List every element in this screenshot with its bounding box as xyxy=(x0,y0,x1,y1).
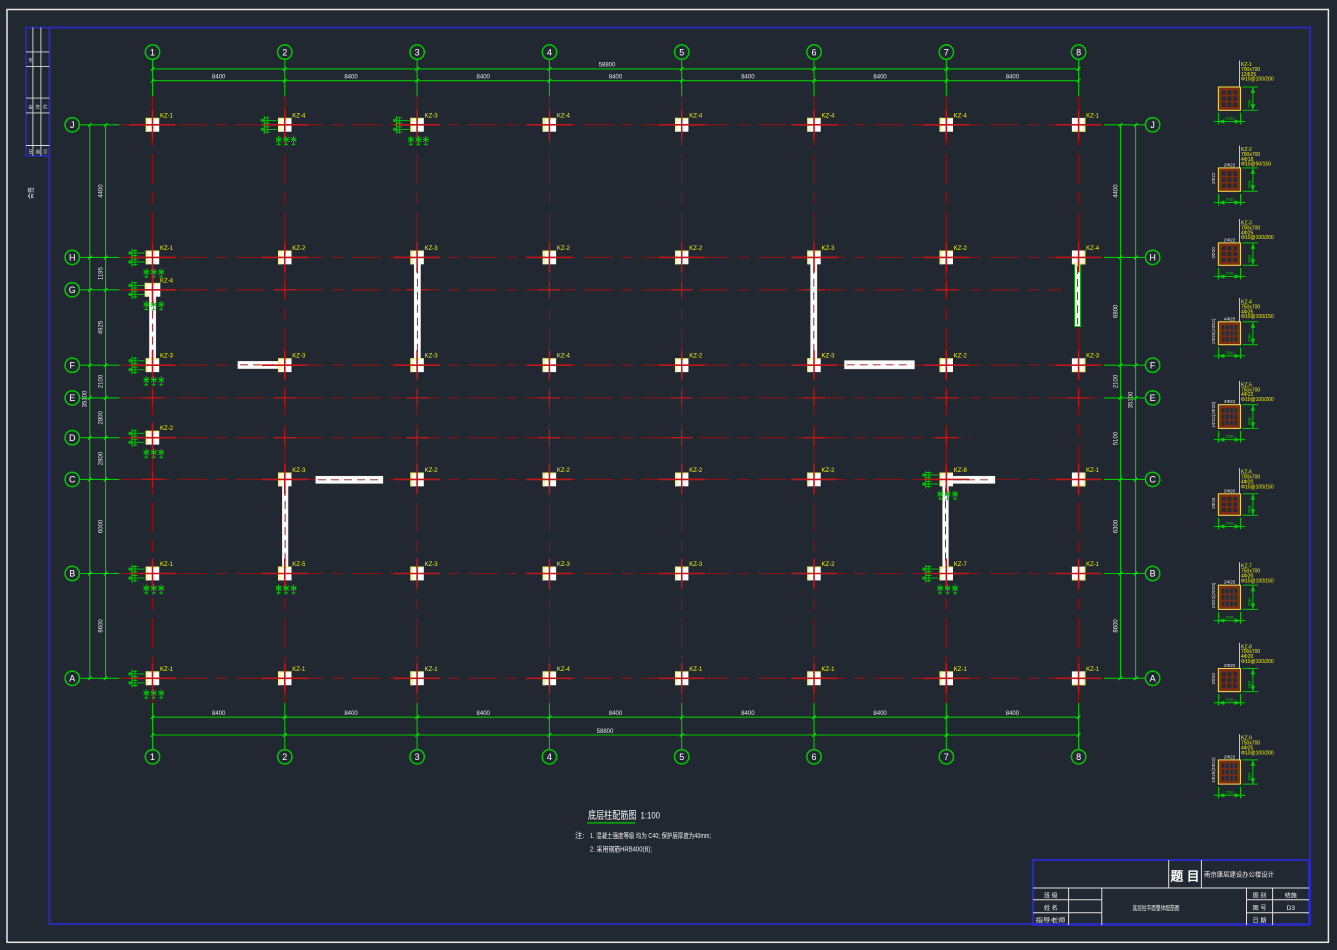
svg-text:700: 700 xyxy=(1225,271,1233,277)
svg-text:700: 700 xyxy=(1225,697,1233,703)
svg-text:B: B xyxy=(69,569,75,579)
svg-text:KZ-5: KZ-5 xyxy=(292,562,306,568)
svg-text:注:: 注: xyxy=(575,830,585,840)
svg-text:KZ-3: KZ-3 xyxy=(689,562,703,568)
svg-text:700: 700 xyxy=(1247,99,1253,107)
svg-text:KZ-1: KZ-1 xyxy=(954,667,968,673)
svg-text:8400: 8400 xyxy=(212,711,226,717)
svg-text:700: 700 xyxy=(1225,350,1233,356)
svg-text:700: 700 xyxy=(1225,116,1233,122)
svg-text:KZ-4: KZ-4 xyxy=(557,667,571,673)
svg-text:姓 名: 姓 名 xyxy=(1044,904,1058,912)
svg-text:2. 采用钢筋HRB400(B);: 2. 采用钢筋HRB400(B); xyxy=(590,845,652,854)
svg-text:8: 8 xyxy=(1076,752,1081,762)
svg-text:A: A xyxy=(1150,674,1156,684)
svg-text:2Φ25: 2Φ25 xyxy=(1224,580,1236,585)
svg-text:700: 700 xyxy=(1225,615,1233,621)
svg-text:F: F xyxy=(1150,360,1156,370)
svg-text:4: 4 xyxy=(547,752,552,762)
svg-text:栏: 栏 xyxy=(43,104,48,111)
svg-text:6000: 6000 xyxy=(99,519,105,533)
svg-text:日 期: 日 期 xyxy=(1253,916,1267,924)
svg-text:KZ-1: KZ-1 xyxy=(425,667,439,673)
svg-text:4Φ22: 4Φ22 xyxy=(1224,399,1236,404)
svg-text:KZ-4: KZ-4 xyxy=(954,113,968,119)
svg-text:8400: 8400 xyxy=(1006,75,1020,81)
svg-text:1195: 1195 xyxy=(99,266,105,280)
svg-text:签: 签 xyxy=(36,104,41,110)
svg-text:8400: 8400 xyxy=(873,711,887,717)
svg-text:1: 1 xyxy=(150,47,155,57)
svg-text:J: J xyxy=(70,120,75,130)
svg-text:KZ-3: KZ-3 xyxy=(425,562,439,568)
svg-text:1Φ25(1Φ22): 1Φ25(1Φ22) xyxy=(1211,318,1216,344)
svg-text:700: 700 xyxy=(1225,197,1233,203)
svg-text:2Φ22: 2Φ22 xyxy=(1211,172,1216,184)
svg-text:KZ-1: KZ-1 xyxy=(160,562,174,568)
svg-text:J: J xyxy=(1150,120,1155,130)
svg-text:2: 2 xyxy=(282,752,287,762)
svg-text:KZ-4: KZ-4 xyxy=(557,354,571,360)
svg-text:D3: D3 xyxy=(1287,905,1296,912)
svg-text:Φ10@100/150: Φ10@100/150 xyxy=(1241,578,1274,584)
svg-text:4: 4 xyxy=(547,47,552,57)
svg-text:7: 7 xyxy=(944,47,949,57)
svg-text:8600: 8600 xyxy=(99,619,105,633)
svg-text:2100: 2100 xyxy=(1113,374,1119,388)
svg-text:1Φ25(2Φ22): 1Φ25(2Φ22) xyxy=(1211,757,1216,783)
svg-text:5: 5 xyxy=(679,47,684,57)
svg-text:KZ-3: KZ-3 xyxy=(822,246,836,252)
svg-text:7: 7 xyxy=(944,752,949,762)
svg-text:结施: 结施 xyxy=(1285,891,1297,899)
svg-text:2Φ25: 2Φ25 xyxy=(1211,497,1216,509)
svg-text:6: 6 xyxy=(811,47,816,57)
svg-text:2800: 2800 xyxy=(99,410,105,424)
svg-text:KZ-3: KZ-3 xyxy=(160,354,174,360)
svg-text:8400: 8400 xyxy=(477,711,491,717)
svg-text:KZ-2: KZ-2 xyxy=(954,354,968,360)
svg-text:南京康居建设办公楼设计: 南京康居建设办公楼设计 xyxy=(1204,870,1275,879)
svg-text:KZ-4: KZ-4 xyxy=(689,113,703,119)
svg-text:F: F xyxy=(69,360,75,370)
svg-text:8400: 8400 xyxy=(1006,711,1020,717)
svg-text:2: 2 xyxy=(282,47,287,57)
svg-text:KZ-2: KZ-2 xyxy=(557,468,571,474)
svg-text:KZ-3: KZ-3 xyxy=(292,354,306,360)
svg-text:Φ10@100/200: Φ10@100/200 xyxy=(1241,659,1274,665)
svg-text:G: G xyxy=(69,285,76,295)
svg-text:2Φ20: 2Φ20 xyxy=(1211,673,1216,685)
svg-text:2Φ22: 2Φ22 xyxy=(1224,754,1236,759)
svg-text:E: E xyxy=(1150,393,1156,403)
svg-text:B: B xyxy=(1150,569,1156,579)
svg-text:C: C xyxy=(1149,475,1156,485)
svg-text:35100: 35100 xyxy=(83,390,89,407)
svg-text:8400: 8400 xyxy=(741,711,755,717)
svg-text:700: 700 xyxy=(1247,417,1253,425)
svg-text:A: A xyxy=(69,674,75,684)
svg-text:KZ-3: KZ-3 xyxy=(425,354,439,360)
svg-text:KZ-3: KZ-3 xyxy=(425,113,439,119)
svg-text:KZ-1: KZ-1 xyxy=(822,667,836,673)
svg-text:35100: 35100 xyxy=(1128,391,1134,408)
svg-text:KZ-1: KZ-1 xyxy=(689,667,703,673)
svg-text:58800: 58800 xyxy=(599,63,616,69)
svg-text:2100: 2100 xyxy=(99,374,105,388)
svg-text:KZ-4: KZ-4 xyxy=(557,113,571,119)
svg-text:底层柱配筋图: 底层柱配筋图 xyxy=(588,809,637,822)
svg-text:Φ10@100/200: Φ10@100/200 xyxy=(1241,235,1274,241)
svg-text:KZ-1: KZ-1 xyxy=(1086,562,1100,568)
svg-text:KZ-3: KZ-3 xyxy=(822,354,836,360)
svg-text:4400: 4400 xyxy=(1113,184,1119,198)
svg-text:Φ10@100/200: Φ10@100/200 xyxy=(1241,77,1274,83)
svg-text:2Φ20: 2Φ20 xyxy=(1211,247,1216,259)
svg-text:1:100: 1:100 xyxy=(641,811,661,821)
svg-text:5100: 5100 xyxy=(1113,431,1119,445)
svg-text:会签: 会签 xyxy=(27,187,35,199)
svg-text:Φ10@100/200: Φ10@100/200 xyxy=(1241,750,1274,756)
svg-text:3: 3 xyxy=(415,752,420,762)
svg-text:专: 专 xyxy=(28,57,33,64)
svg-text:8400: 8400 xyxy=(344,711,358,717)
svg-text:8400: 8400 xyxy=(873,75,887,81)
svg-text:2Φ22: 2Φ22 xyxy=(1224,237,1236,242)
svg-text:KZ-1: KZ-1 xyxy=(1086,667,1100,673)
svg-text:C: C xyxy=(69,475,76,485)
svg-text:6: 6 xyxy=(811,752,816,762)
svg-text:58800: 58800 xyxy=(597,729,614,735)
svg-text:8600: 8600 xyxy=(1113,619,1119,633)
svg-text:700: 700 xyxy=(1225,434,1233,440)
svg-text:KZ-3: KZ-3 xyxy=(557,562,571,568)
svg-text:KZ-1: KZ-1 xyxy=(160,246,174,252)
svg-text:图 别: 图 别 xyxy=(1253,891,1267,899)
svg-text:2Φ20: 2Φ20 xyxy=(1224,663,1236,668)
svg-text:Φ10@100/150: Φ10@100/150 xyxy=(1241,314,1274,320)
svg-text:5: 5 xyxy=(679,752,684,762)
svg-text:KZ-1: KZ-1 xyxy=(1086,113,1100,119)
svg-text:Φ10@100/150: Φ10@100/150 xyxy=(1241,484,1274,490)
svg-text:KZ-2: KZ-2 xyxy=(689,246,703,252)
svg-text:1: 1 xyxy=(150,752,155,762)
svg-text:1Φ22(2Φ20): 1Φ22(2Φ20) xyxy=(1211,401,1216,427)
svg-text:H: H xyxy=(1149,253,1156,263)
svg-text:KZ-2: KZ-2 xyxy=(557,246,571,252)
svg-text:KZ-1: KZ-1 xyxy=(160,667,174,673)
svg-text:底层柱平面整体配筋图: 底层柱平面整体配筋图 xyxy=(1133,903,1180,912)
svg-text:KZ-3: KZ-3 xyxy=(292,468,306,474)
svg-text:KZ-4: KZ-4 xyxy=(160,278,174,284)
svg-text:1Φ22(2Φ20): 1Φ22(2Φ20) xyxy=(1211,582,1216,608)
svg-text:KZ-2: KZ-2 xyxy=(822,562,836,568)
svg-text:6800: 6800 xyxy=(1113,304,1119,318)
svg-text:700: 700 xyxy=(1247,505,1253,513)
svg-text:KZ-2: KZ-2 xyxy=(292,246,306,252)
svg-text:KZ-7: KZ-7 xyxy=(954,562,968,568)
svg-text:KZ-3: KZ-3 xyxy=(1086,354,1100,360)
svg-text:H: H xyxy=(69,253,76,263)
svg-text:KZ-4: KZ-4 xyxy=(822,113,836,119)
svg-text:KZ-4: KZ-4 xyxy=(292,113,306,119)
svg-text:8: 8 xyxy=(1076,47,1081,57)
svg-text:指导老师: 指导老师 xyxy=(1036,916,1066,924)
svg-text:KZ-3: KZ-3 xyxy=(425,246,439,252)
svg-text:1. 混凝土强度等级 均为 C40; 保护层厚度为40mm;: 1. 混凝土强度等级 均为 C40; 保护层厚度为40mm; xyxy=(590,831,711,840)
svg-text:KZ-2: KZ-2 xyxy=(160,426,174,432)
svg-text:6300: 6300 xyxy=(1113,519,1119,533)
svg-text:700: 700 xyxy=(1247,180,1253,188)
svg-text:8400: 8400 xyxy=(609,75,623,81)
svg-text:KZ-1: KZ-1 xyxy=(160,113,174,119)
svg-text:图 号: 图 号 xyxy=(1253,905,1267,912)
svg-text:Φ10@100/200: Φ10@100/200 xyxy=(1241,397,1274,403)
svg-text:KZ-2: KZ-2 xyxy=(425,468,439,474)
svg-text:8400: 8400 xyxy=(741,75,755,81)
svg-text:KZ-8: KZ-8 xyxy=(954,468,968,474)
svg-text:700: 700 xyxy=(1247,598,1253,606)
svg-text:会: 会 xyxy=(28,104,33,111)
svg-text:2Φ20: 2Φ20 xyxy=(1224,488,1236,493)
svg-text:D: D xyxy=(69,433,76,443)
svg-text:700: 700 xyxy=(1247,773,1253,781)
svg-text:4925: 4925 xyxy=(99,320,105,334)
svg-text:KZ-2: KZ-2 xyxy=(689,354,703,360)
svg-text:8400: 8400 xyxy=(212,75,226,81)
svg-text:Φ10@50/150: Φ10@50/150 xyxy=(1241,162,1271,168)
svg-text:2Φ22: 2Φ22 xyxy=(1224,162,1236,167)
svg-text:2800: 2800 xyxy=(99,451,105,465)
svg-text:4Φ25: 4Φ25 xyxy=(1224,316,1236,321)
svg-text:E: E xyxy=(69,393,75,403)
svg-text:题 目: 题 目 xyxy=(1171,870,1200,884)
svg-text:4400: 4400 xyxy=(99,184,105,198)
svg-text:KZ-2: KZ-2 xyxy=(689,468,703,474)
svg-text:班 级: 班 级 xyxy=(1044,891,1058,899)
svg-text:3: 3 xyxy=(415,47,420,57)
svg-text:KZ-2: KZ-2 xyxy=(954,246,968,252)
svg-text:KZ-4: KZ-4 xyxy=(1086,246,1100,252)
svg-text:8400: 8400 xyxy=(609,711,623,717)
svg-text:700: 700 xyxy=(1247,681,1253,689)
svg-text:700: 700 xyxy=(1247,255,1253,263)
svg-text:KZ-2: KZ-2 xyxy=(822,468,836,474)
svg-text:KZ-1: KZ-1 xyxy=(1086,468,1100,474)
svg-text:700: 700 xyxy=(1247,334,1253,342)
svg-text:700: 700 xyxy=(1225,521,1233,527)
svg-text:KZ-1: KZ-1 xyxy=(292,667,306,673)
svg-text:8400: 8400 xyxy=(477,75,491,81)
svg-text:700: 700 xyxy=(1225,790,1233,796)
svg-text:8400: 8400 xyxy=(344,75,358,81)
